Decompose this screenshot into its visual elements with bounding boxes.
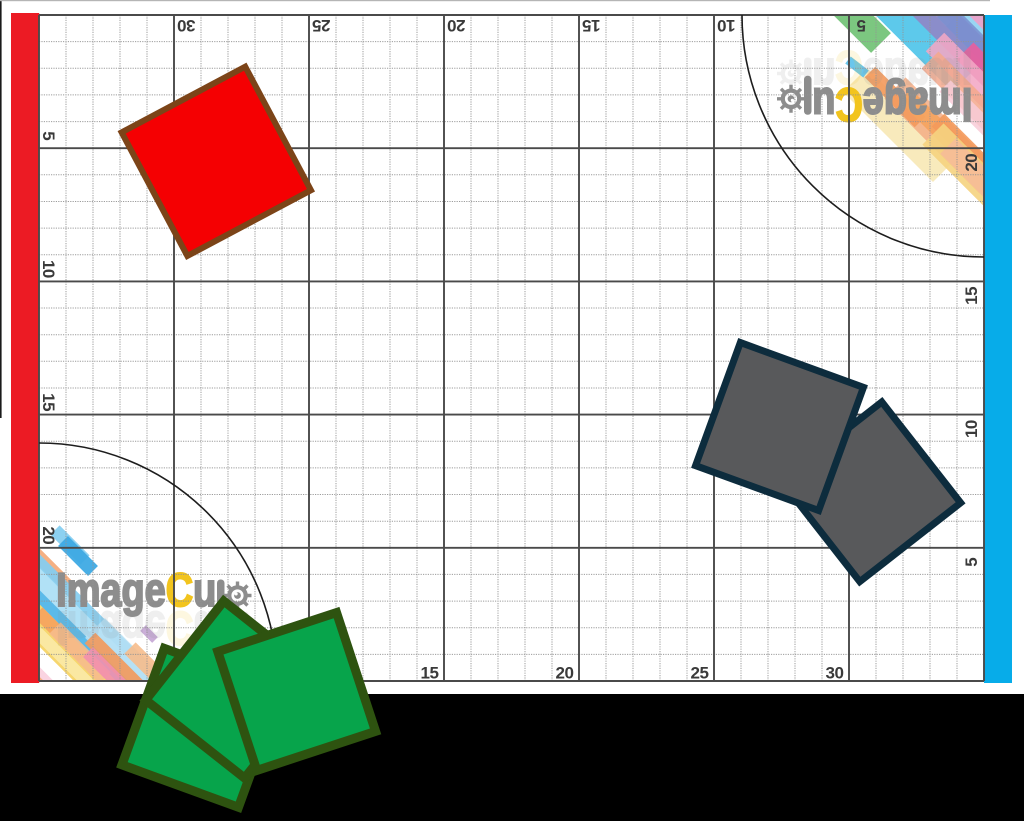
svg-text:15: 15 bbox=[583, 16, 601, 35]
svg-text:5: 5 bbox=[857, 16, 866, 35]
svg-text:25: 25 bbox=[313, 16, 331, 35]
svg-text:ImageCu: ImageCu bbox=[812, 77, 972, 130]
svg-text:30: 30 bbox=[826, 664, 844, 683]
svg-text:10: 10 bbox=[718, 16, 736, 35]
svg-text:30: 30 bbox=[178, 16, 196, 35]
svg-text:20: 20 bbox=[556, 664, 574, 683]
svg-text:25: 25 bbox=[691, 664, 709, 683]
svg-text:ImageCu: ImageCu bbox=[56, 564, 216, 617]
svg-text:20: 20 bbox=[39, 526, 58, 544]
svg-text:20: 20 bbox=[448, 16, 466, 35]
svg-text:15: 15 bbox=[962, 287, 981, 305]
svg-text:20: 20 bbox=[962, 154, 981, 172]
svg-text:10: 10 bbox=[39, 260, 58, 278]
svg-text:5: 5 bbox=[962, 558, 981, 567]
svg-text:15: 15 bbox=[39, 393, 58, 411]
svg-text:15: 15 bbox=[421, 664, 439, 683]
svg-text:10: 10 bbox=[962, 420, 981, 438]
svg-text:5: 5 bbox=[39, 131, 58, 140]
